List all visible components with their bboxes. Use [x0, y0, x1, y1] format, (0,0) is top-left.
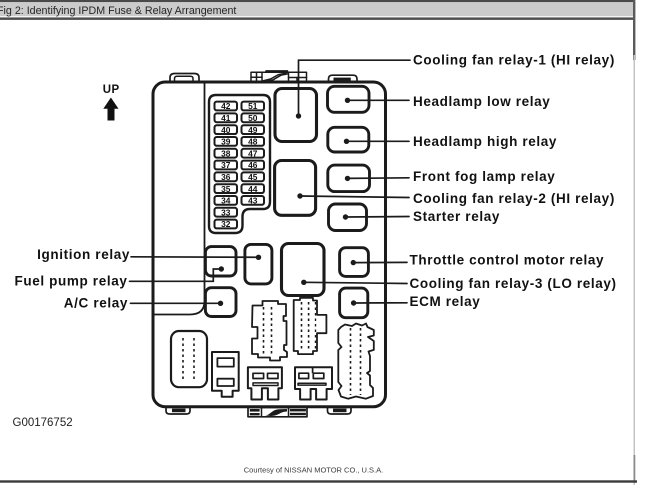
svg-text:UP: UP	[103, 84, 120, 96]
svg-text:Throttle control motor relay: Throttle control motor relay	[410, 253, 605, 268]
svg-text:43: 43	[248, 196, 258, 206]
svg-text:Fuel pump relay: Fuel pump relay	[15, 273, 128, 288]
svg-text:Cooling fan relay-3 (LO relay): Cooling fan relay-3 (LO relay)	[410, 276, 617, 291]
svg-text:Ignition relay: Ignition relay	[37, 247, 130, 262]
svg-text:37: 37	[221, 160, 231, 170]
svg-text:A/C relay: A/C relay	[64, 295, 128, 310]
svg-text:Cooling fan relay-1 (HI relay): Cooling fan relay-1 (HI relay)	[413, 52, 615, 67]
svg-text:51: 51	[248, 101, 258, 111]
svg-text:46: 46	[248, 160, 258, 170]
svg-text:36: 36	[221, 172, 231, 182]
svg-text:ECM relay: ECM relay	[410, 294, 481, 309]
svg-text:49: 49	[248, 125, 258, 135]
svg-text:32: 32	[221, 219, 231, 229]
svg-text:Starter relay: Starter relay	[413, 209, 500, 224]
svg-text:50: 50	[248, 113, 258, 123]
svg-text:35: 35	[221, 184, 231, 194]
svg-text:45: 45	[248, 172, 258, 182]
svg-text:Courtesy of NISSAN MOTOR CO.,: Courtesy of NISSAN MOTOR CO., U.S.A.	[244, 466, 383, 475]
svg-text:Headlamp high relay: Headlamp high relay	[413, 134, 557, 149]
svg-text:44: 44	[248, 184, 258, 194]
svg-text:47: 47	[248, 148, 258, 158]
svg-text:40: 40	[221, 125, 231, 135]
svg-text:G00176752: G00176752	[13, 417, 73, 429]
svg-text:Cooling fan relay-2 (HI relay): Cooling fan relay-2 (HI relay)	[413, 191, 615, 206]
svg-text:33: 33	[221, 207, 231, 217]
svg-text:48: 48	[248, 137, 258, 147]
svg-text:39: 39	[221, 137, 231, 147]
svg-text:Headlamp low relay: Headlamp low relay	[413, 94, 550, 109]
svg-text:41: 41	[221, 113, 231, 123]
svg-text:Fig 2: Identifying IPDM Fuse &: Fig 2: Identifying IPDM Fuse & Relay Arr…	[0, 5, 236, 17]
svg-text:Front fog lamp relay: Front fog lamp relay	[413, 169, 555, 184]
svg-text:34: 34	[221, 196, 231, 206]
svg-text:38: 38	[221, 148, 231, 158]
svg-text:42: 42	[221, 101, 231, 111]
